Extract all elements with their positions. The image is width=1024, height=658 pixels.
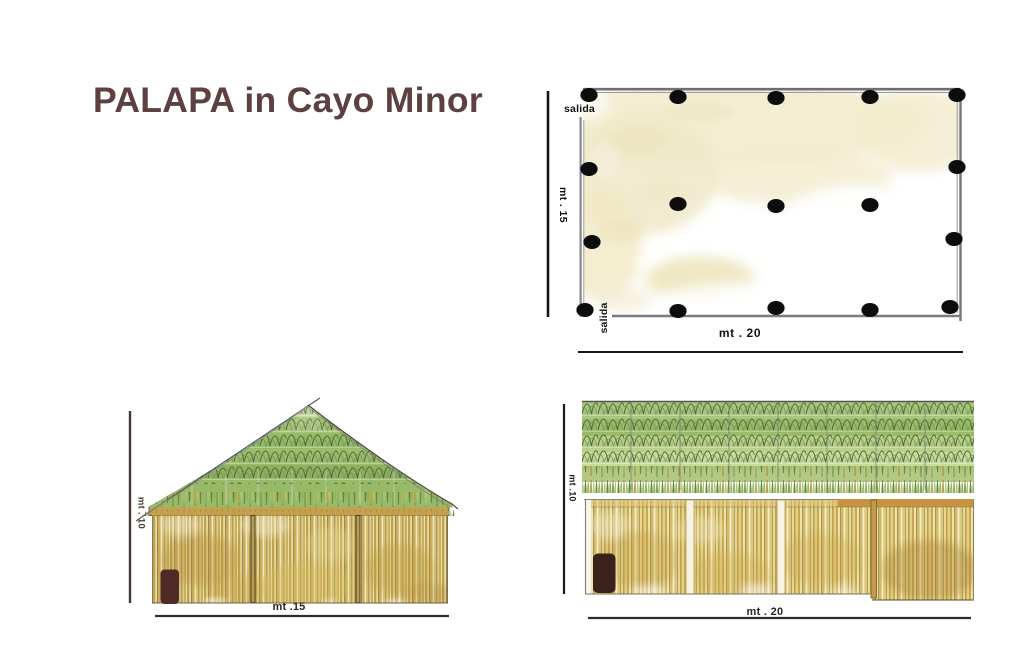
- svg-text:mt . 15: mt . 15: [557, 187, 569, 223]
- svg-text:mt . 20: mt . 20: [747, 606, 784, 618]
- svg-text:mt . 10: mt . 10: [136, 497, 147, 529]
- svg-text:salida: salida: [564, 103, 595, 115]
- svg-text:mt .15: mt .15: [273, 601, 306, 613]
- svg-text:mt .10: mt .10: [568, 474, 578, 501]
- svg-text:salida: salida: [598, 303, 610, 334]
- svg-text:mt . 20: mt . 20: [719, 326, 761, 340]
